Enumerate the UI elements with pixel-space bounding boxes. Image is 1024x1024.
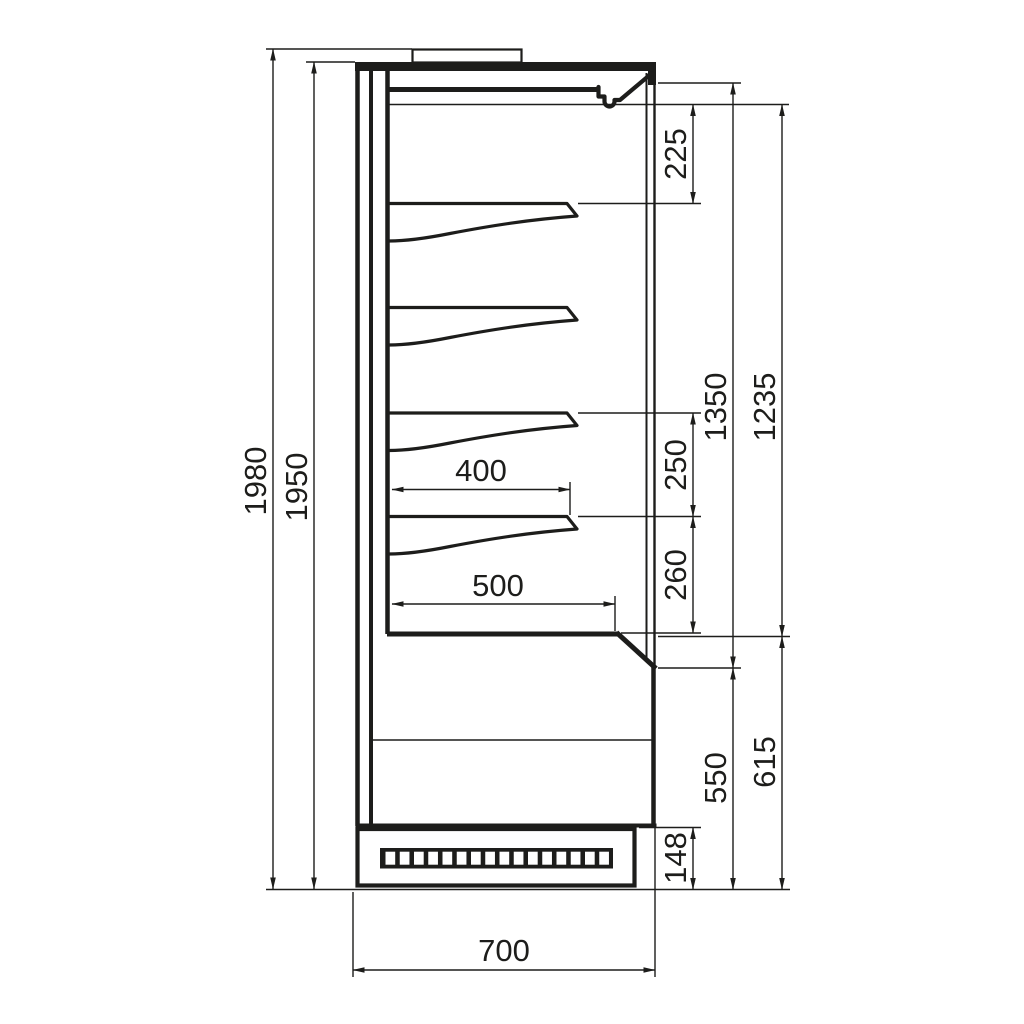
bumper-diagonal [617, 633, 657, 669]
dim-overall-depth-label: 700 [478, 933, 530, 968]
dim-shelf-to-deck-label: 260 [658, 549, 693, 601]
grille-slot [428, 852, 438, 865]
dim-opening-height-label: 1350 [698, 373, 733, 442]
ventilation-grille [380, 848, 613, 869]
dim-interior-height-label: 1235 [747, 373, 782, 442]
shelves [389, 204, 577, 555]
grille-slot [500, 852, 510, 865]
dim-lower-front-height-label: 550 [698, 752, 733, 804]
grille-slot [528, 852, 538, 865]
dim-plinth-height-label: 148 [658, 832, 693, 884]
dim-base-section-height-label: 615 [747, 736, 782, 788]
shelf-1 [389, 204, 577, 242]
grille-slot [542, 852, 552, 865]
grille-slot [485, 852, 495, 865]
grille-slot [557, 852, 567, 865]
dim-shelf-depth-label: 400 [455, 453, 507, 488]
dim-overall-height-label: 1980 [238, 447, 273, 516]
drawing-canvas: 1980 1950 225 250 260 148 1350 550 1235 … [0, 0, 1024, 1024]
shelf-3 [389, 413, 577, 451]
grille-slot [414, 852, 424, 865]
dim-deck-depth-label: 500 [472, 568, 524, 603]
grille-slot [571, 852, 581, 865]
grille-slot [514, 852, 524, 865]
top-cap [413, 50, 522, 63]
grille-slot [386, 852, 396, 865]
shelf-4 [389, 517, 577, 555]
grille-slot [457, 852, 467, 865]
dim-canopy-to-first-shelf-label: 225 [658, 128, 693, 180]
air-discharge-detail [599, 74, 652, 107]
dim-body-height-label: 1950 [279, 453, 314, 522]
grille-slot [443, 852, 453, 865]
grille-slot [585, 852, 595, 865]
dim-shelf-gap-upper-label: 250 [658, 439, 693, 491]
technical-drawing: 1980 1950 225 250 260 148 1350 550 1235 … [0, 0, 1024, 1024]
grille-slot [400, 852, 410, 865]
grille-slot [471, 852, 481, 865]
grille-slot [599, 852, 609, 865]
shelf-2 [389, 308, 577, 346]
